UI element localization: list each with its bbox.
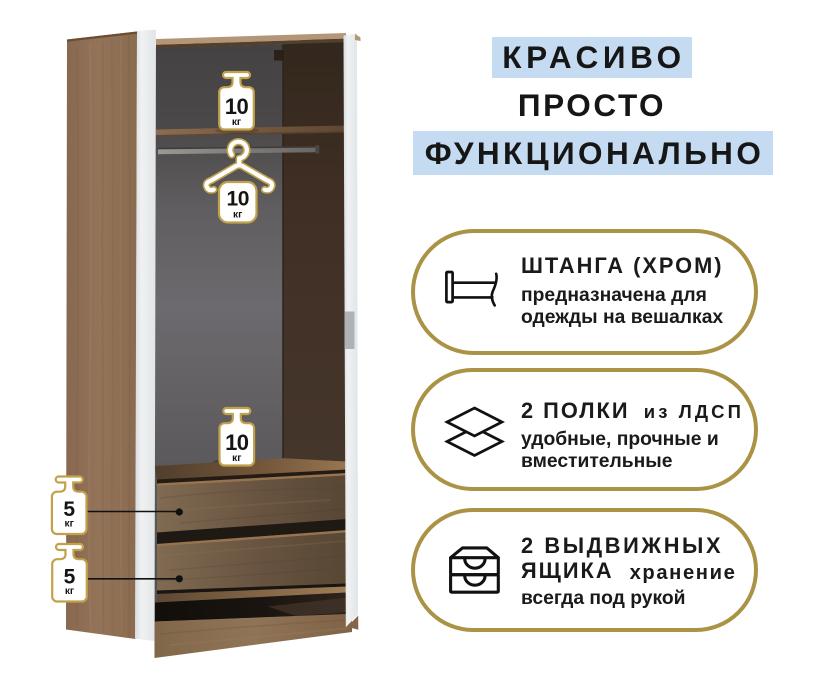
svg-text:5: 5 bbox=[64, 565, 76, 588]
svg-text:10: 10 bbox=[227, 187, 249, 210]
svg-text:кг: кг bbox=[232, 453, 241, 464]
svg-text:кг: кг bbox=[232, 117, 241, 128]
svg-text:кг: кг bbox=[233, 209, 242, 220]
svg-text:10: 10 bbox=[225, 94, 249, 119]
svg-text:кг: кг bbox=[65, 519, 74, 530]
svg-text:5: 5 bbox=[63, 498, 75, 521]
svg-text:10: 10 bbox=[225, 430, 249, 455]
svg-text:кг: кг bbox=[65, 586, 74, 597]
